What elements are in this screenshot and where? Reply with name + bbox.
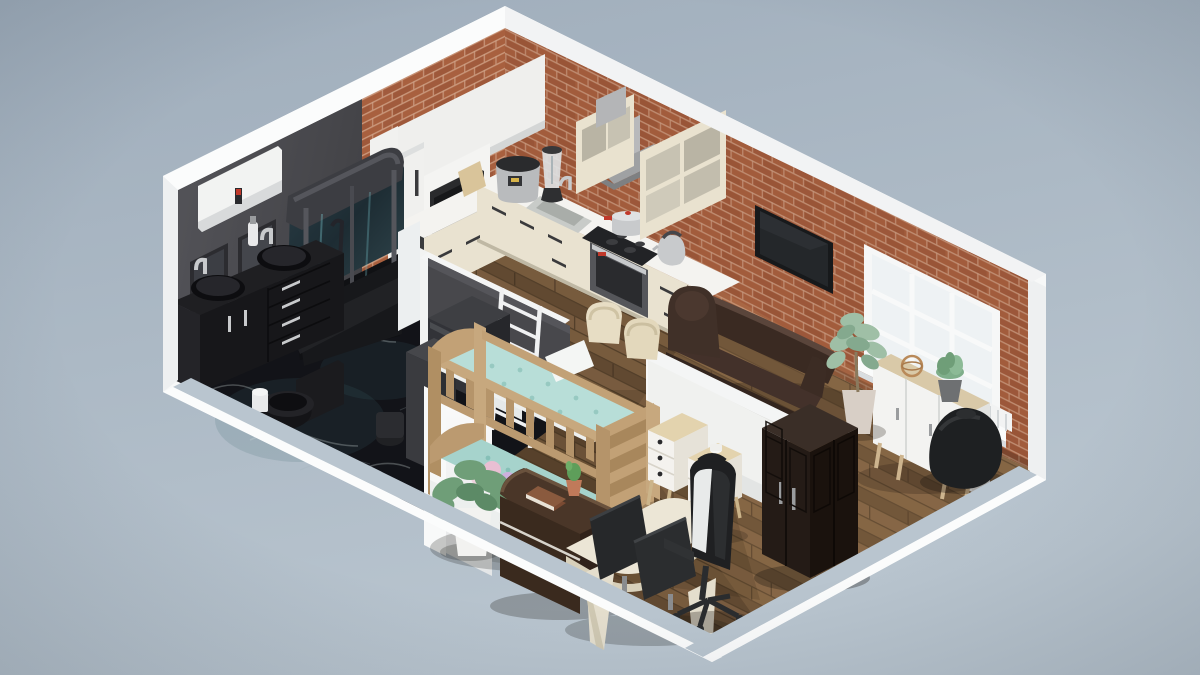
isometric-scene [0,0,1200,675]
vignette [0,0,1200,675]
apartment-render [0,0,1200,675]
